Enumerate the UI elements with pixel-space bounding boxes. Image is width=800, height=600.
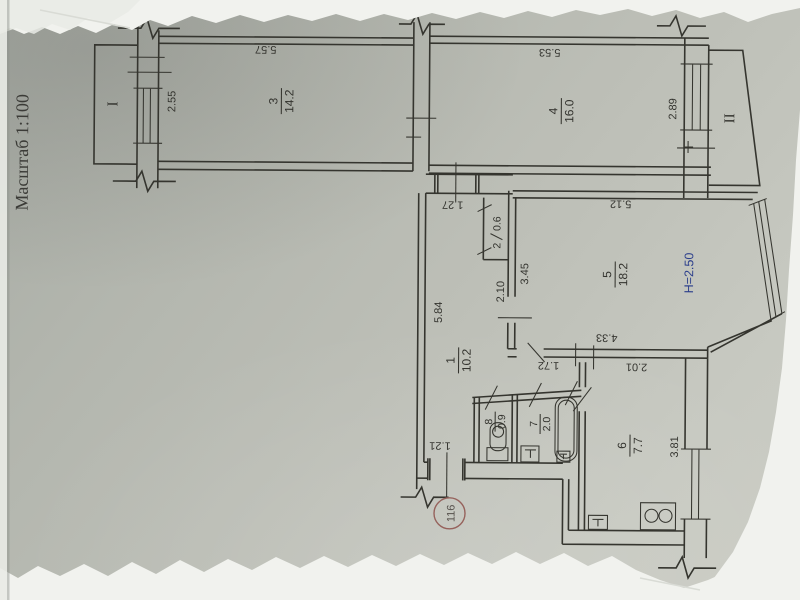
balcony-2-label: II xyxy=(722,113,738,123)
paper-edge-left xyxy=(0,0,7,600)
dim-corridor-length: 5.84 xyxy=(433,302,445,324)
svg-text:6: 6 xyxy=(615,442,629,449)
svg-text:14.2: 14.2 xyxy=(282,89,296,113)
svg-text:4: 4 xyxy=(546,107,560,114)
corridor-top-wall xyxy=(426,162,513,202)
torn-paper-corner-top-left xyxy=(0,0,140,34)
ceiling-height-note: H=2.50 xyxy=(682,253,696,294)
dim-room5-length: 5.12 xyxy=(610,197,632,209)
svg-text:7: 7 xyxy=(528,421,540,427)
dim-corridor-opening: 1.27 xyxy=(442,198,464,210)
bay-window-room-5 xyxy=(708,198,786,359)
room-8-label: 8 0.9 xyxy=(483,412,508,432)
stove-icon xyxy=(640,503,675,530)
apartment-number: 116 xyxy=(445,505,457,523)
torn-paper-edge-right xyxy=(694,110,800,600)
svg-text:8: 8 xyxy=(483,419,495,425)
svg-text:0.6: 0.6 xyxy=(491,216,503,231)
radiator-icon-bathroom xyxy=(521,446,539,462)
dim-room5-bottom: 4.33 xyxy=(596,331,618,343)
room-5-label: 5 18.2 xyxy=(600,261,630,287)
svg-text:2.0: 2.0 xyxy=(541,417,553,432)
paper-wrinkles xyxy=(40,10,700,590)
dim-room4-width: 2.89 xyxy=(667,98,679,120)
svg-text:1: 1 xyxy=(444,357,458,364)
kitchen-walls xyxy=(562,357,718,578)
room-3-label: 3 14.2 xyxy=(266,88,296,114)
room-7-label: 7 2.0 xyxy=(528,414,553,434)
dimension-ticks xyxy=(576,343,594,369)
wall-break-bottom-left xyxy=(113,171,176,191)
svg-text:16.0: 16.0 xyxy=(562,99,576,123)
torn-paper-edges xyxy=(0,0,800,600)
wall-break-bottom-right xyxy=(658,557,716,578)
window-kitchen xyxy=(680,449,710,519)
room-4-label: 4 16.0 xyxy=(546,98,576,124)
door-swing-closet xyxy=(477,205,491,255)
svg-text:18.2: 18.2 xyxy=(616,263,630,287)
wall-break-entrance xyxy=(401,487,449,507)
dim-kitchen-length: 3.81 xyxy=(669,436,681,458)
svg-text:0.9: 0.9 xyxy=(496,414,508,429)
svg-text:3: 3 xyxy=(266,97,280,104)
svg-text:2: 2 xyxy=(491,243,503,249)
balcony-1-label: I xyxy=(105,101,121,106)
radiator-icon xyxy=(684,141,693,153)
radiator-icon-kitchen xyxy=(588,515,607,529)
svg-text:5: 5 xyxy=(600,271,614,278)
paper-edge-left-shadow xyxy=(7,0,10,600)
room-6-label: 6 7.7 xyxy=(615,435,645,457)
floor-plan-drawing: 116 xyxy=(0,0,800,600)
dimension-ticks xyxy=(406,118,436,137)
dim-entrance-width: 1.21 xyxy=(429,439,451,451)
room-1-label: 1 10.2 xyxy=(443,347,473,373)
svg-text:7.7: 7.7 xyxy=(631,437,645,454)
dim-room5-left: 3.45 xyxy=(519,263,531,285)
svg-text:10.2: 10.2 xyxy=(459,348,473,372)
dim-corridor-width: 2.10 xyxy=(495,281,507,303)
corridor-left-wall xyxy=(401,193,451,507)
dim-room4-length: 5.53 xyxy=(539,46,561,58)
dim-room3-length: 5.57 xyxy=(255,43,277,55)
dimension-ticks xyxy=(128,57,172,72)
room-2-label: 2 0.6 xyxy=(490,216,503,248)
dim-hall-width: 1.72 xyxy=(538,359,560,371)
dim-kitchen-width: 2.01 xyxy=(626,361,648,373)
floorplan-photo: 116 xyxy=(0,0,800,600)
apartment-number-stamp: 116 xyxy=(434,498,465,529)
scale-label: Масштаб 1:100 xyxy=(12,94,33,211)
entrance-wall xyxy=(417,452,563,498)
dim-room3-width: 2.55 xyxy=(166,91,178,113)
wall-break-top-right xyxy=(657,16,706,36)
